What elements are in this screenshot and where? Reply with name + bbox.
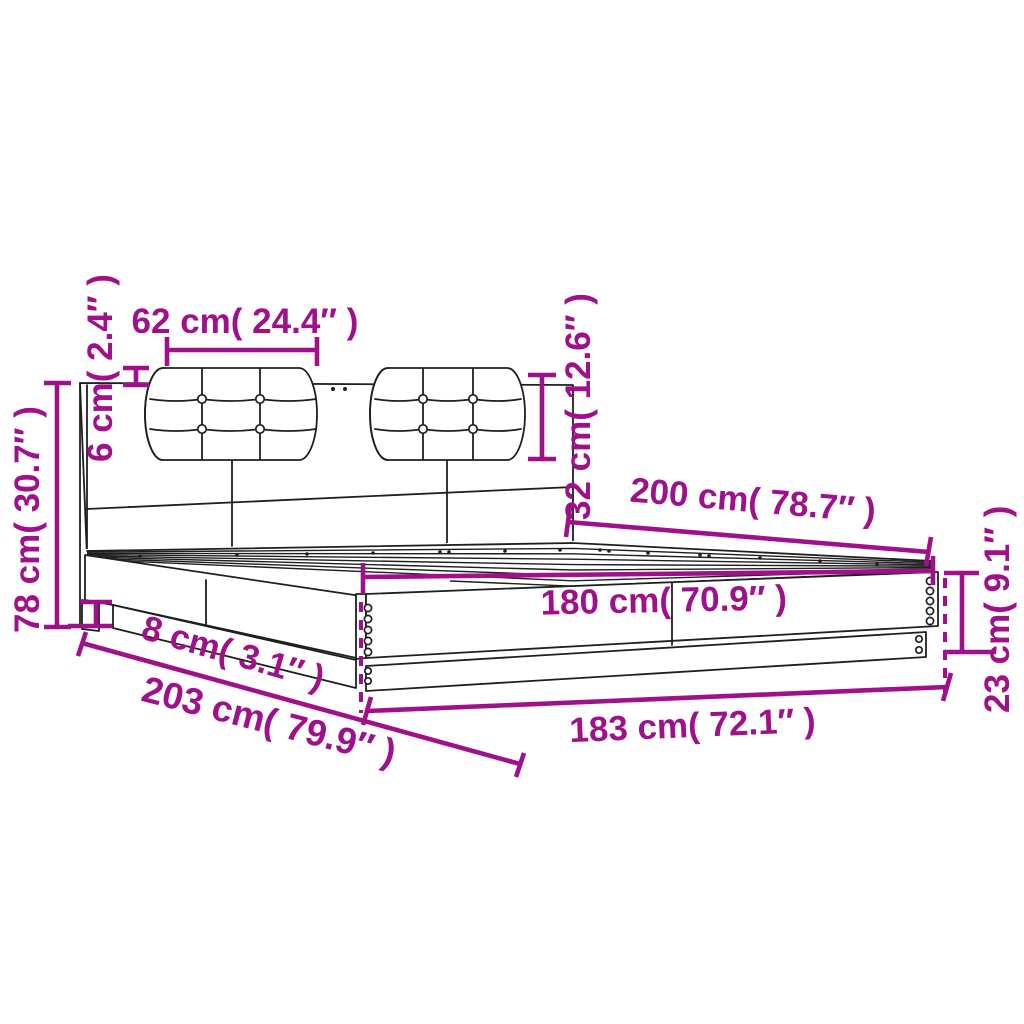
dimension-label-bed-length: 200 cm( 78.7″ ) [629,471,878,531]
tufting-button [469,395,477,403]
headboard-cushion-right [370,368,525,460]
bed-frame-dimension-diagram: 62 cm( 24.4″ ) 6 cm( 2.4″ ) 32 cm( 12.6″… [0,0,1024,1024]
dimension-label-outer-width: 183 cm( 72.1″ ) [569,701,817,750]
tufting-button [419,425,427,433]
dimension-label-inner-width: 180 cm( 70.9″ ) [540,578,787,622]
dimension-label-cushion-top-offset: 6 cm( 2.4″ ) [81,274,120,462]
tufting-button [419,395,427,403]
tufting-button [256,425,264,433]
tufting-button [256,395,264,403]
dimension-label-cushion-width: 62 cm( 24.4″ ) [132,302,359,341]
dimension-label-headboard-height: 78 cm( 30.7″ ) [8,406,47,633]
dimension-label-side-rail-height: 23 cm( 9.1″ ) [978,506,1017,713]
tufting-button [198,425,206,433]
diagram-canvas: 62 cm( 24.4″ ) 6 cm( 2.4″ ) 32 cm( 12.6″… [0,0,1024,1024]
tufting-button [198,395,206,403]
screw-dot [331,387,335,391]
dim-headboard-height [44,383,71,627]
headboard-cushion-left [145,368,317,460]
screw-dot [343,387,347,391]
dimension-label-cushion-height: 32 cm( 12.6″ ) [559,293,598,520]
tufting-button [469,425,477,433]
dim-cushion-width [167,337,317,366]
